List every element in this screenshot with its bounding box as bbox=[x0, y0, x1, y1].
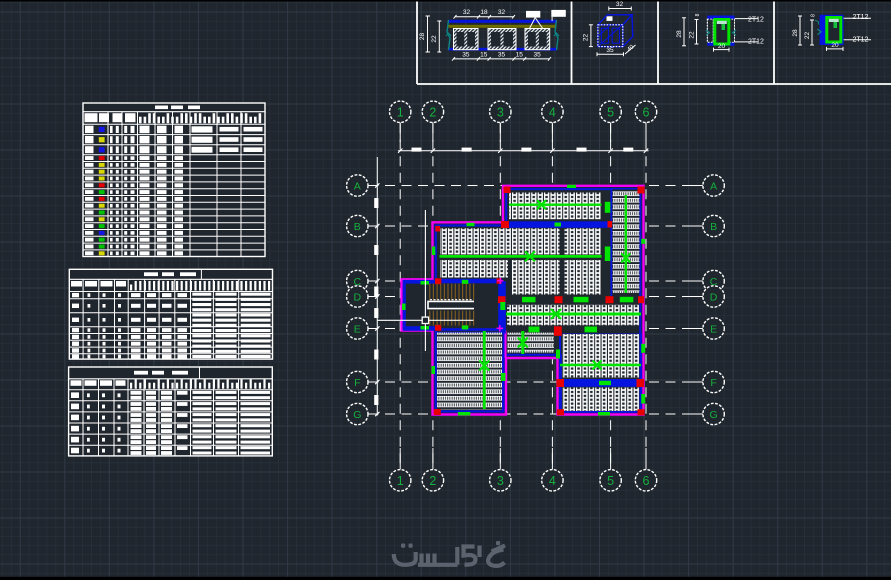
svg-text:F: F bbox=[710, 377, 716, 389]
svg-text:G: G bbox=[353, 409, 361, 421]
svg-text:28: 28 bbox=[792, 29, 799, 37]
svg-text:F: F bbox=[354, 377, 360, 389]
svg-text:E: E bbox=[354, 323, 361, 335]
svg-text:35: 35 bbox=[462, 52, 470, 59]
svg-text:B: B bbox=[710, 221, 717, 233]
svg-text:6: 6 bbox=[643, 474, 650, 488]
svg-text:2T12: 2T12 bbox=[853, 14, 869, 21]
svg-text:2T12: 2T12 bbox=[748, 17, 764, 24]
svg-text:22: 22 bbox=[583, 34, 590, 42]
svg-text:15: 15 bbox=[480, 52, 488, 59]
svg-text:20: 20 bbox=[718, 43, 726, 50]
svg-text:35: 35 bbox=[606, 47, 614, 54]
svg-text:3: 3 bbox=[497, 474, 504, 488]
svg-text:22: 22 bbox=[804, 32, 811, 40]
svg-text:2: 2 bbox=[429, 474, 436, 488]
svg-text:G: G bbox=[710, 409, 718, 421]
svg-text:5: 5 bbox=[607, 105, 614, 119]
svg-text:8: 8 bbox=[811, 14, 817, 17]
svg-text:3: 3 bbox=[497, 105, 504, 119]
svg-text:28: 28 bbox=[676, 30, 683, 38]
svg-text:8: 8 bbox=[695, 13, 701, 16]
svg-text:1: 1 bbox=[397, 474, 404, 488]
svg-text:32: 32 bbox=[463, 9, 471, 16]
svg-text:35: 35 bbox=[533, 52, 541, 59]
svg-text:35: 35 bbox=[498, 52, 506, 59]
svg-text:A: A bbox=[710, 180, 717, 192]
svg-text:6: 6 bbox=[643, 105, 650, 119]
svg-text:2: 2 bbox=[429, 105, 436, 119]
svg-text:32: 32 bbox=[616, 1, 624, 8]
svg-text:4: 4 bbox=[549, 474, 556, 488]
svg-text:32: 32 bbox=[498, 9, 506, 16]
svg-text:15: 15 bbox=[516, 52, 524, 59]
svg-text:D: D bbox=[354, 291, 362, 303]
svg-text:22: 22 bbox=[431, 35, 438, 43]
svg-text:D: D bbox=[710, 291, 718, 303]
svg-text:B: B bbox=[354, 221, 361, 233]
svg-text:4: 4 bbox=[549, 105, 556, 119]
svg-text:22: 22 bbox=[689, 31, 696, 39]
svg-text:1: 1 bbox=[397, 105, 404, 119]
svg-text:5: 5 bbox=[607, 474, 614, 488]
svg-text:E: E bbox=[710, 323, 717, 335]
svg-text:28: 28 bbox=[419, 33, 426, 41]
svg-text:A: A bbox=[354, 180, 361, 192]
svg-text:20: 20 bbox=[831, 42, 839, 49]
svg-text:18: 18 bbox=[480, 9, 488, 16]
